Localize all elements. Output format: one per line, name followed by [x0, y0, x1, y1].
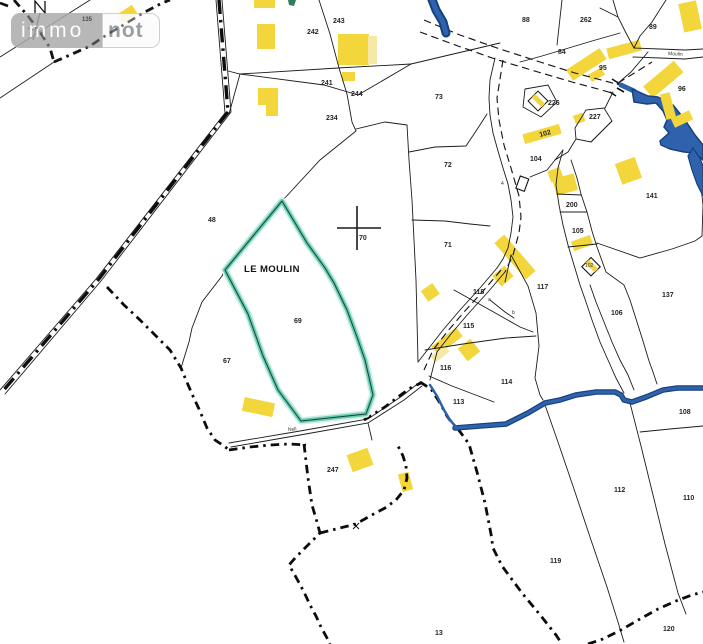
svg-text:Nell: Nell: [288, 426, 297, 433]
svg-text:141: 141: [646, 193, 658, 200]
svg-text:70: 70: [359, 235, 367, 242]
svg-text:110: 110: [683, 495, 694, 502]
svg-text:227: 227: [589, 114, 601, 121]
svg-text:LE MOULIN: LE MOULIN: [244, 264, 300, 275]
svg-text:115: 115: [463, 323, 474, 330]
svg-text:243: 243: [333, 18, 345, 25]
svg-text:84: 84: [558, 49, 566, 56]
svg-text:242: 242: [307, 29, 319, 36]
svg-text:114: 114: [501, 379, 512, 386]
svg-text:106: 106: [611, 310, 623, 317]
svg-text:119: 119: [550, 558, 561, 565]
svg-text:118: 118: [473, 289, 484, 296]
svg-text:48: 48: [208, 217, 216, 224]
svg-text:13: 13: [435, 630, 443, 637]
svg-text:200: 200: [566, 202, 578, 209]
svg-text:113: 113: [453, 399, 464, 406]
svg-text:89: 89: [649, 24, 657, 31]
svg-text:88: 88: [522, 17, 530, 24]
svg-text:137: 137: [662, 292, 674, 299]
svg-text:247: 247: [327, 467, 339, 474]
svg-text:108: 108: [679, 409, 691, 416]
svg-text:73: 73: [435, 94, 443, 101]
svg-text:96: 96: [678, 86, 686, 93]
svg-text:a: a: [488, 297, 491, 303]
svg-text:262: 262: [580, 17, 592, 24]
svg-text:112: 112: [614, 487, 625, 494]
svg-text:71: 71: [444, 242, 452, 249]
svg-text:241: 241: [321, 80, 333, 87]
svg-text:120: 120: [663, 626, 675, 633]
svg-text:95: 95: [599, 65, 607, 72]
svg-text:117: 117: [537, 284, 548, 291]
svg-text:69: 69: [294, 318, 302, 325]
svg-text:72: 72: [444, 162, 452, 169]
svg-text:234: 234: [326, 115, 338, 122]
svg-text:244: 244: [351, 91, 363, 98]
svg-text:4: 4: [501, 181, 504, 187]
svg-text:104: 104: [530, 156, 542, 163]
svg-text:116: 116: [440, 365, 451, 372]
svg-text:67: 67: [223, 358, 231, 365]
svg-text:Moulin: Moulin: [668, 51, 683, 58]
svg-text:226: 226: [548, 100, 560, 107]
svg-text:b: b: [512, 310, 515, 316]
svg-text:105: 105: [572, 228, 584, 235]
svg-text:102: 102: [585, 263, 594, 269]
